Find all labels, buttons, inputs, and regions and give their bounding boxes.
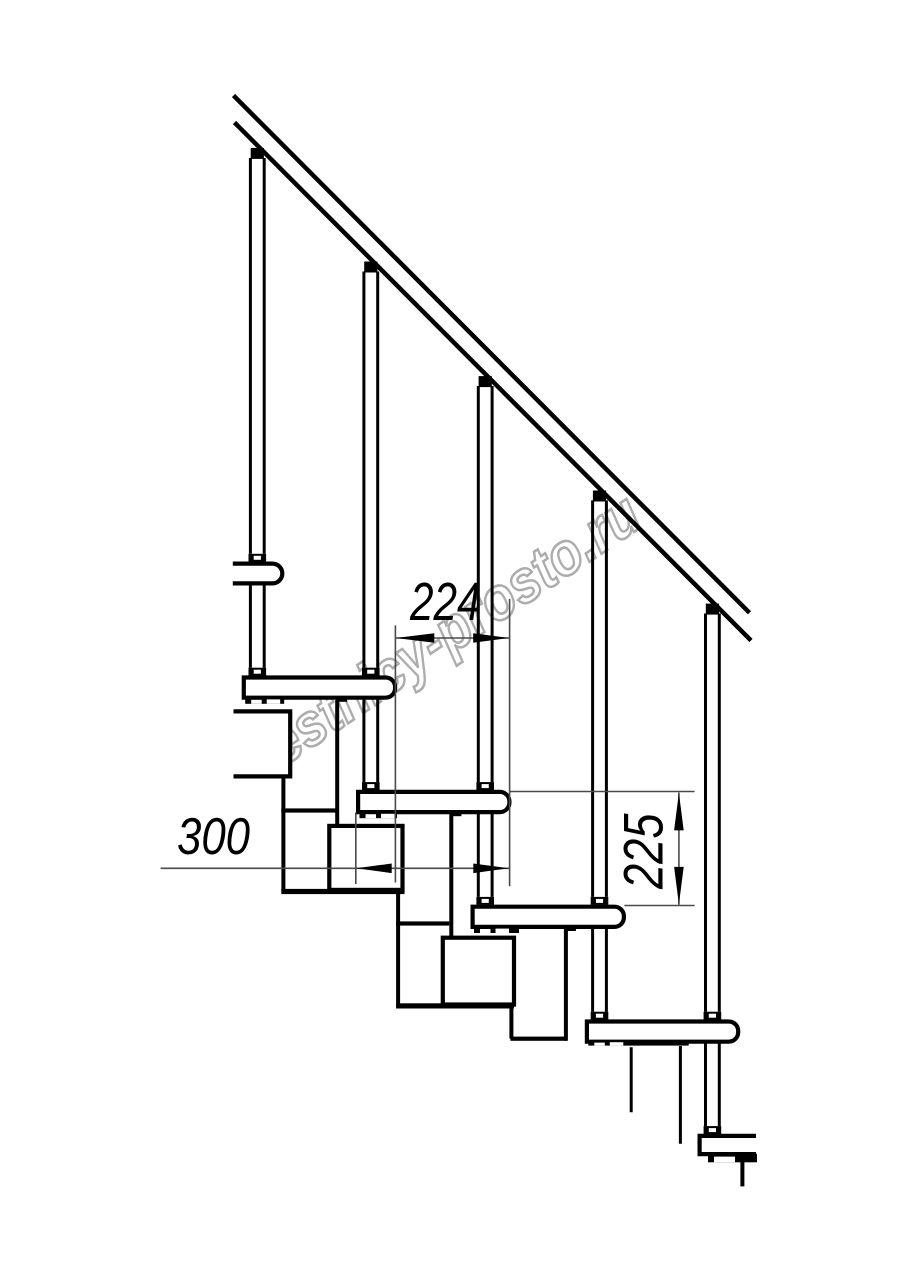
svg-text:225: 225 <box>612 813 675 890</box>
svg-text:224: 224 <box>409 573 480 632</box>
svg-text:300: 300 <box>177 808 250 866</box>
svg-text:lestnicy-prosto.ru: lestnicy-prosto.ru <box>241 480 652 786</box>
